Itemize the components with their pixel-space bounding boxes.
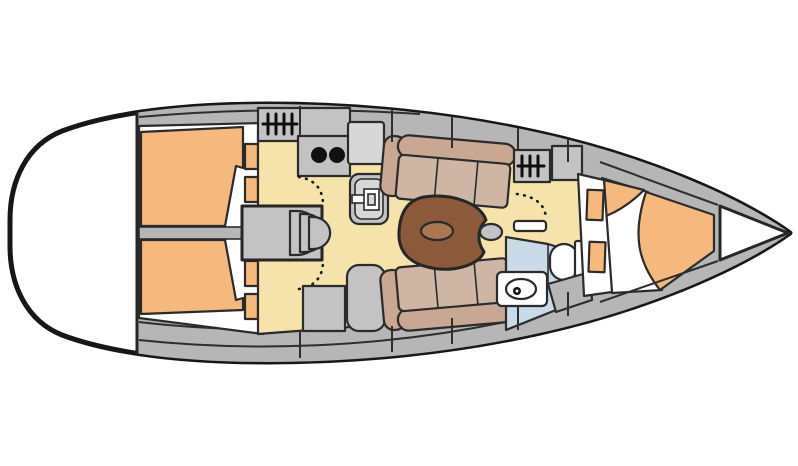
nav-seat	[347, 265, 385, 331]
aft-berth-top	[141, 127, 243, 226]
mast-post	[480, 224, 502, 240]
drain-icon-center	[516, 290, 519, 293]
toilet-bowl	[550, 244, 578, 280]
head-door-leaf	[514, 221, 546, 231]
berth-shelf	[245, 144, 258, 169]
aft-berth-bottom	[141, 240, 243, 314]
floor-plan-canvas	[0, 0, 798, 466]
berth-shelf	[245, 177, 258, 202]
centerline-bulkhead	[139, 227, 243, 239]
nav-desk	[303, 286, 345, 331]
boat-floor-plan	[0, 0, 798, 466]
berth-shelf	[586, 190, 603, 221]
fridge-top	[348, 122, 384, 164]
berth-shelf	[245, 294, 258, 319]
washbasin	[506, 279, 536, 299]
table-inlay	[421, 222, 453, 240]
burner-icon	[311, 147, 327, 163]
berth-shelf	[245, 261, 258, 286]
berth-shelf	[588, 242, 605, 273]
burner-icon	[329, 147, 345, 163]
